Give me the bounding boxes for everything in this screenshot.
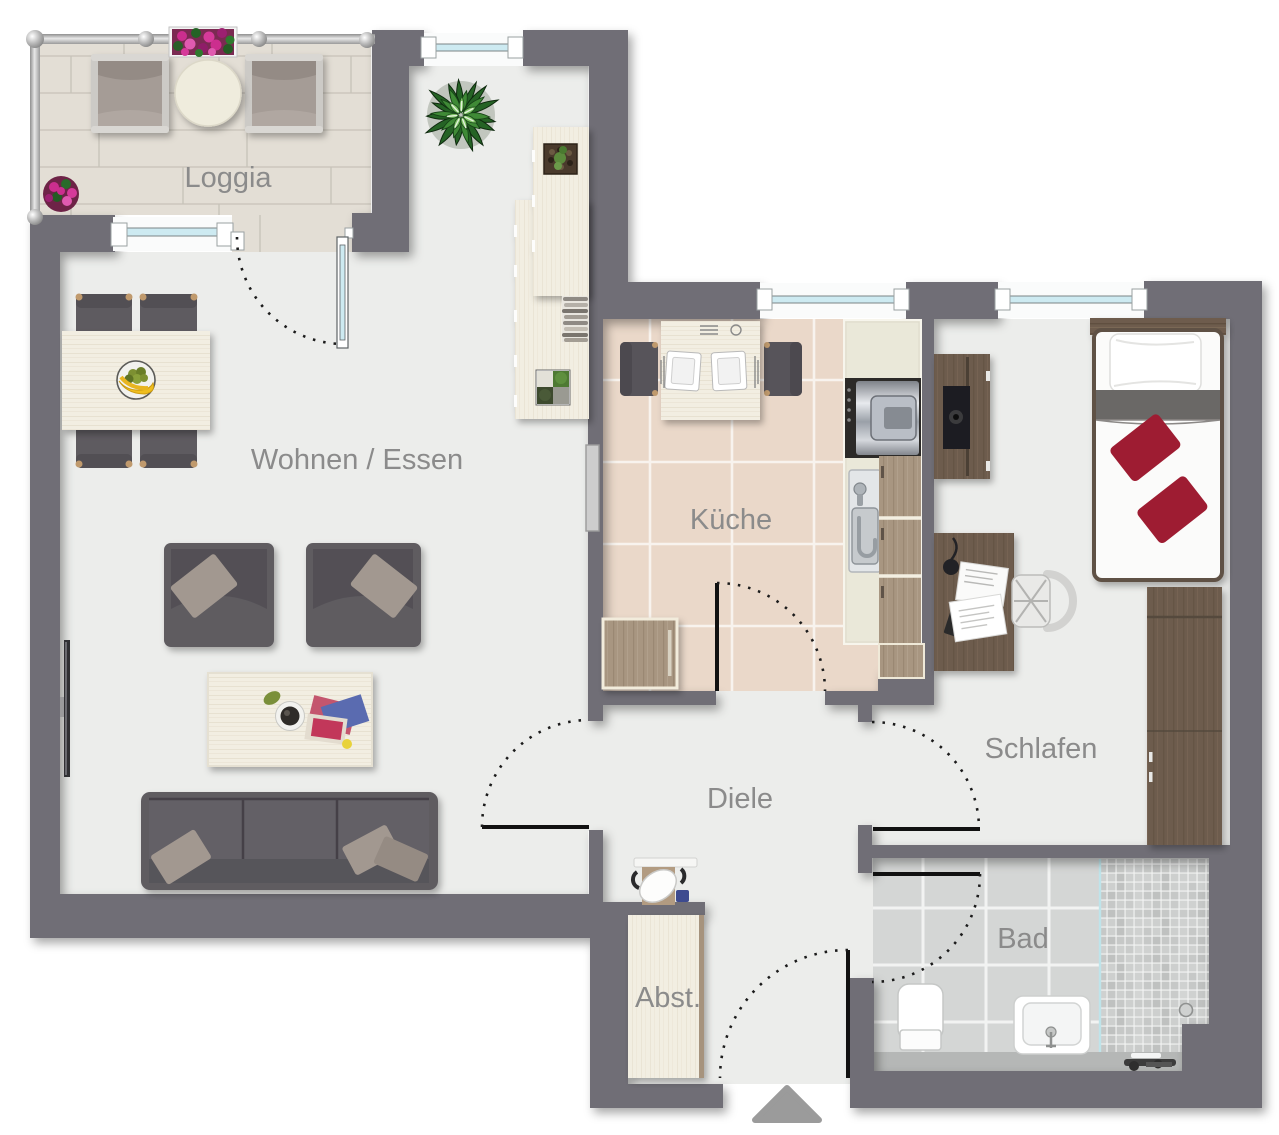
svg-text:Diele: Diele [707, 783, 773, 815]
svg-text:Schlafen: Schlafen [985, 733, 1098, 765]
svg-text:Wohnen / Essen: Wohnen / Essen [251, 444, 463, 476]
svg-text:Küche: Küche [690, 504, 772, 536]
svg-text:Bad: Bad [997, 923, 1049, 955]
svg-text:Loggia: Loggia [184, 162, 272, 194]
svg-text:Abst.: Abst. [635, 982, 701, 1014]
